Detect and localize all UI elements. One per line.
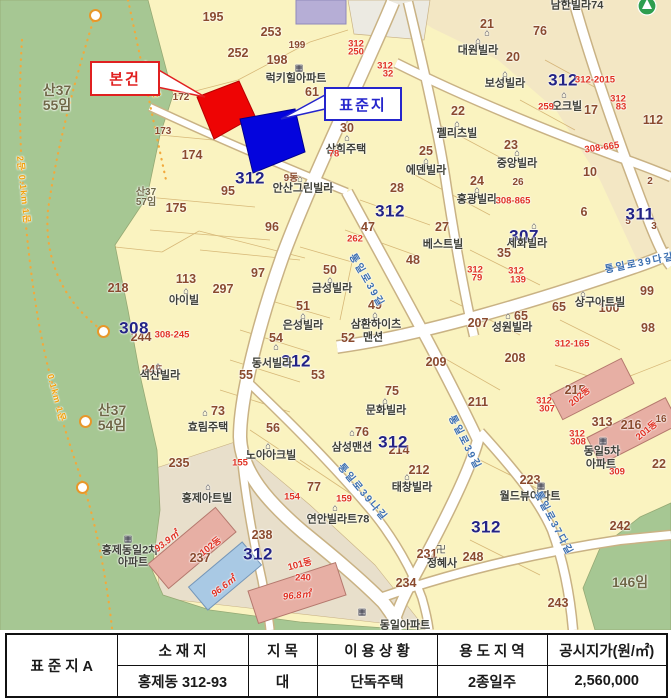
map-label: 76 (355, 426, 369, 439)
map-label: 홍광빌라 (457, 195, 497, 206)
map-label: 통일로39길 (446, 414, 482, 472)
standard-land-table: 표 준 지 A 소 재 지 지 목 이 용 상 황 용 도 지 역 공시지가(원… (5, 633, 668, 698)
map-label: 297 (213, 283, 234, 296)
map-label: 52 (341, 332, 355, 345)
map-label: 73 (211, 405, 225, 418)
map-label: 218 (108, 282, 129, 295)
map-label: 172 (173, 93, 190, 103)
map-label: 연안빌라트78 (307, 515, 370, 526)
apartment-icon: ▦ (124, 535, 133, 544)
map-label: 대원빌라 (458, 46, 498, 57)
map-label: 308-865 (496, 196, 531, 206)
villa-icon: ⌂ (273, 343, 278, 352)
map-label: 태창빌라 (392, 483, 432, 494)
map-label: 홍제동일2차 (102, 546, 159, 557)
map-label: 47 (361, 221, 375, 234)
villa-icon: ⌂ (580, 290, 585, 299)
map-label: 동일5차 (584, 447, 620, 458)
map-label: 아이빌 (169, 296, 199, 307)
map-label: 56 (266, 422, 280, 435)
map-label: 208 (505, 352, 526, 365)
map-label: 26 (512, 178, 523, 188)
map-label: 309 (609, 467, 625, 477)
map-label: 308-665 (584, 141, 620, 155)
map-label: 312 (235, 170, 265, 187)
map-label: 성원빌라 (492, 323, 532, 334)
villa-icon: ⌂ (484, 29, 489, 38)
map-label: 22 (652, 458, 666, 471)
map-label: 48 (406, 254, 420, 267)
map-label: 312 (375, 203, 405, 220)
map-label: 96.8㎡ (283, 590, 312, 602)
col-header-use: 이 용 상 황 (317, 634, 437, 666)
apartment-icon: ▦ (599, 437, 608, 446)
map-label: 262 (347, 234, 363, 244)
map-label: 234 (396, 577, 417, 590)
map-label: 79 (472, 273, 483, 283)
cell-use: 단독주택 (317, 666, 437, 698)
map-label: 0.1km 1문 (45, 373, 66, 423)
map-label: 312 (378, 434, 408, 451)
map-label: 20 (506, 51, 520, 64)
map-label: 3 (651, 222, 657, 232)
map-label: 월드뷰아파트 (500, 492, 561, 503)
map-label: 세화빌라 (507, 239, 547, 250)
map-label: 남한빌라74 (551, 1, 604, 12)
table-row-header: 표 준 지 A (6, 634, 117, 697)
map-label: 2문 0.1km 1문 (15, 156, 31, 225)
map-label: 76 (533, 25, 547, 38)
map-label: 은성빌라 (283, 321, 323, 332)
map-label: 308 (570, 437, 586, 447)
map-label: 57임 (136, 198, 156, 208)
villa-icon: ⌂ (202, 409, 207, 418)
map-label: 112 (643, 114, 663, 127)
map-label: 83 (616, 102, 627, 112)
map-label: 252 (228, 47, 249, 60)
villa-icon: ⌂ (382, 397, 387, 406)
villa-icon: ⌂ (327, 276, 332, 285)
map-label: 240 (295, 573, 311, 583)
map-label: 통일로39다길 (604, 252, 671, 275)
map-label: 250 (348, 47, 364, 57)
cell-location: 홍제동 312-93 (117, 666, 248, 698)
cell-price: 2,560,000 (547, 666, 667, 698)
map-label: 198 (267, 54, 288, 67)
cell-zone: 2종일주 (437, 666, 547, 698)
map-label: 195 (203, 11, 224, 24)
map-label: 159 (336, 494, 352, 504)
map-label: 312 (471, 519, 501, 536)
map-label: 313 (592, 416, 613, 429)
col-header-location: 소 재 지 (117, 634, 248, 666)
map-label: 98 (641, 322, 655, 335)
map-label: 209 (426, 356, 447, 369)
map-label: 54임 (98, 418, 126, 432)
villa-icon: ⌂ (514, 149, 519, 158)
villa-icon: ⌂ (372, 311, 377, 320)
map-label: 211 (468, 396, 488, 409)
map-label: 311 (626, 206, 655, 223)
map-label: 308-245 (155, 330, 190, 340)
villa-icon: ⌂ (155, 362, 160, 371)
cadastral-map[interactable]: 산3755임산3754임산3757임146임195252253198199611… (0, 0, 671, 630)
villa-icon: ⌂ (454, 120, 459, 129)
map-label: 199 (289, 41, 306, 51)
map-label: 96 (265, 221, 279, 234)
villa-icon: ⌂ (474, 186, 479, 195)
standard-callout: 표준지 (324, 87, 402, 121)
map-label: 정혜사 (427, 559, 457, 570)
map-label: 펠리츠빌 (437, 129, 477, 140)
map-label: 312 (548, 72, 578, 89)
temple-icon: 卍 (436, 546, 446, 556)
map-label: 77 (307, 481, 321, 494)
map-label: 93.9㎡ (153, 530, 181, 555)
map-label: 99 (640, 285, 654, 298)
villa-icon: ⌂ (505, 312, 510, 321)
villa-icon: ⌂ (332, 504, 337, 513)
map-label: 산37 (98, 403, 126, 417)
villa-icon: ⌂ (300, 312, 305, 321)
map-label: 28 (390, 182, 404, 195)
land-info-section: 표 준 지 A 소 재 지 지 목 이 용 상 황 용 도 지 역 공시지가(원… (0, 630, 671, 700)
map-label: 에덴빌라 (406, 166, 446, 177)
trail-marker-icon (89, 9, 102, 22)
map-label: 207 (468, 317, 489, 330)
map-label: 102동 (198, 536, 223, 559)
map-label: 통일로39길 (347, 253, 386, 310)
map-label: 65 (514, 310, 528, 323)
map-label: 307 (539, 404, 555, 414)
villa-icon: ⌂ (205, 483, 210, 492)
cell-category: 대 (248, 666, 317, 698)
map-label: 노아아크빌 (246, 451, 297, 462)
map-label: 보성빌라 (485, 79, 525, 90)
map-label: 212 (409, 464, 430, 477)
map-label: 243 (548, 597, 569, 610)
map-label: 55 (239, 369, 253, 382)
map-label: 상구아트빌 (575, 298, 626, 309)
map-label: 동서빌라 (252, 359, 292, 370)
map-label: 101동 (287, 557, 313, 573)
map-label: 17 (584, 104, 598, 117)
map-label: 61 (305, 86, 319, 99)
map-label: 석산빌라 (140, 371, 180, 382)
map-label: 308 (119, 320, 149, 337)
map-label: 산37 (43, 83, 71, 97)
map-label: 홍제아트빌 (182, 494, 233, 505)
map-label: 175 (166, 202, 187, 215)
villa-icon: ⌂ (531, 222, 536, 231)
map-label: 154 (284, 492, 300, 502)
map-label: 253 (261, 26, 282, 39)
map-label: 삼환하이츠 (351, 320, 402, 331)
apartment-icon: ▦ (295, 64, 304, 73)
map-label: 65 (552, 301, 566, 314)
trail-marker-icon (76, 481, 89, 494)
villa-icon: ⌂ (349, 429, 354, 438)
villa-icon: ⌂ (404, 473, 409, 482)
map-label: 235 (169, 457, 190, 470)
map-label: 아파트 (118, 558, 148, 569)
map-label: 중앙빌라 (497, 159, 537, 170)
map-label: 238 (252, 529, 273, 542)
map-label: 오크빌 (552, 102, 582, 113)
map-label: 146임 (612, 575, 648, 589)
villa-icon: ⌂ (561, 91, 566, 100)
villa-icon: ⌂ (183, 287, 188, 296)
map-label: 27 (435, 221, 449, 234)
page: 산3755임산3754임산3757임146임195252253198199611… (0, 0, 671, 700)
map-label: 32 (383, 69, 394, 79)
map-label: 베스트빌 (423, 240, 463, 251)
col-header-category: 지 목 (248, 634, 317, 666)
map-label: 155 (232, 458, 248, 468)
map-label: 312-165 (555, 339, 590, 349)
map-label: 53 (311, 369, 325, 382)
map-label: 문화빌라 (366, 406, 406, 417)
map-label: 안산그린빌라 (273, 184, 334, 195)
map-label: 242 (610, 520, 631, 533)
map-label: 22 (451, 105, 465, 118)
map-label: 효림주택 (188, 423, 228, 434)
map-label: 139 (510, 275, 526, 285)
trail-marker-icon (79, 415, 92, 428)
map-label: 312 (243, 546, 273, 563)
map-label: 10 (583, 166, 597, 179)
map-label: 259 (538, 102, 554, 112)
villa-icon: ⌂ (502, 70, 507, 79)
map-label: 삼성맨션 (332, 443, 372, 454)
map-label: 6 (581, 206, 588, 219)
map-label: 97 (251, 267, 265, 280)
villa-icon: ⌂ (423, 157, 428, 166)
villa-icon: ⌂ (344, 134, 349, 143)
map-label: 113 (176, 273, 196, 286)
map-label: 78 (329, 149, 340, 159)
map-label: 럭키힐아파트 (266, 74, 327, 85)
map-label: 312-2015 (575, 75, 615, 85)
villa-icon: ⌂ (297, 175, 302, 184)
map-label: 174 (182, 149, 203, 162)
col-header-zone: 용 도 지 역 (437, 634, 547, 666)
col-header-price: 공시지가(원/㎡) (547, 634, 667, 666)
apartment-icon: ▦ (358, 608, 367, 617)
villa-icon: ⌂ (475, 37, 480, 46)
map-label: 동일아파트 (380, 621, 431, 631)
villa-icon: ⌂ (265, 442, 270, 451)
map-label: 95 (221, 185, 235, 198)
map-label: 173 (155, 127, 172, 137)
trail-marker-icon (97, 325, 110, 338)
map-label: 55임 (43, 98, 71, 112)
map-label: 2 (647, 177, 653, 187)
map-label: 96.6㎡ (210, 575, 238, 600)
map-label: 금성빌라 (312, 284, 352, 295)
subject-callout: 본건 (90, 61, 160, 96)
map-label: 248 (463, 551, 484, 564)
map-label: 맨션 (363, 333, 383, 344)
